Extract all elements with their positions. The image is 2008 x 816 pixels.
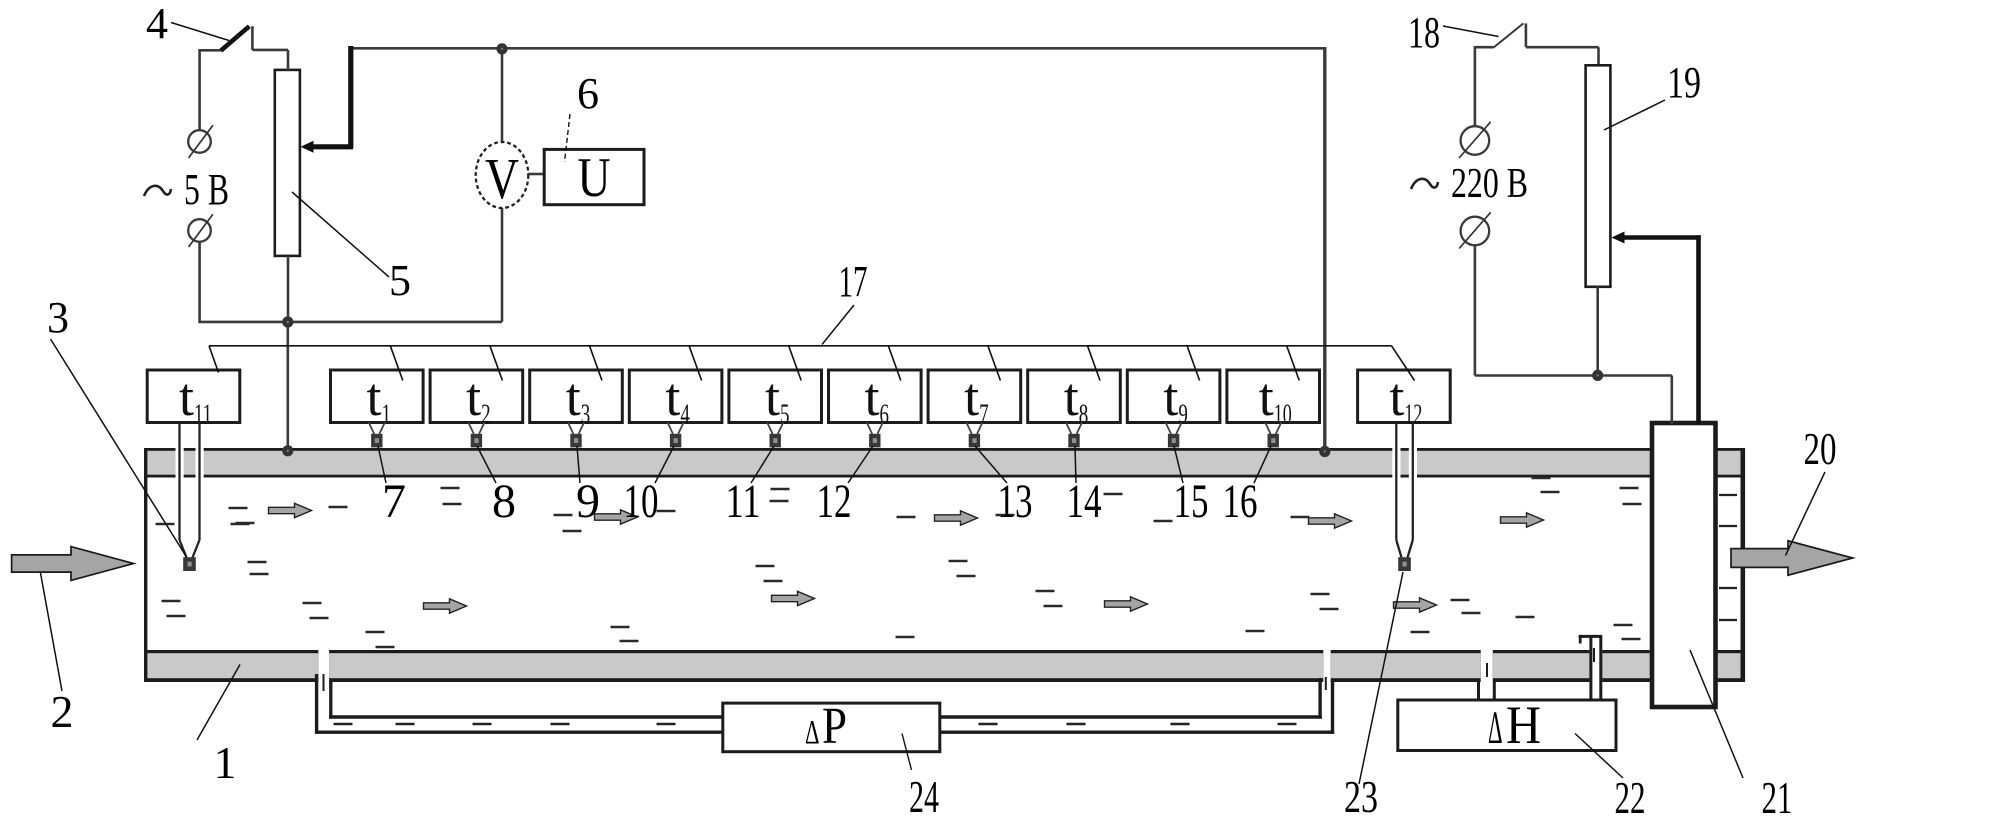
svg-text:P: P <box>822 698 847 755</box>
svg-text:14: 14 <box>1067 475 1102 528</box>
svg-text:16: 16 <box>1223 475 1258 528</box>
svg-text:Δ: Δ <box>1488 702 1503 754</box>
svg-text:12: 12 <box>817 475 852 528</box>
svg-text:13: 13 <box>998 475 1033 528</box>
svg-text:11: 11 <box>726 475 761 528</box>
svg-text:22: 22 <box>1615 772 1646 816</box>
svg-text:18: 18 <box>1408 8 1440 57</box>
svg-text:5: 5 <box>389 256 411 305</box>
svg-text:21: 21 <box>1762 772 1793 816</box>
svg-text:5 В: 5 В <box>184 165 229 214</box>
svg-text:H: H <box>1506 695 1541 755</box>
svg-text:20: 20 <box>1804 423 1837 474</box>
svg-text:V: V <box>485 146 519 211</box>
svg-text:Δ: Δ <box>805 714 820 751</box>
svg-text:10: 10 <box>624 475 659 528</box>
svg-text:4: 4 <box>146 0 168 48</box>
svg-text:3: 3 <box>47 293 69 342</box>
svg-text:2: 2 <box>51 686 74 737</box>
svg-text:220 В: 220 В <box>1451 161 1528 207</box>
svg-text:15: 15 <box>1174 475 1209 528</box>
svg-text:1: 1 <box>214 737 237 788</box>
svg-text:U: U <box>578 147 611 209</box>
svg-text:17: 17 <box>839 257 868 306</box>
svg-text:24: 24 <box>909 771 939 816</box>
svg-text:6: 6 <box>577 69 599 118</box>
svg-text:19: 19 <box>1667 58 1701 107</box>
